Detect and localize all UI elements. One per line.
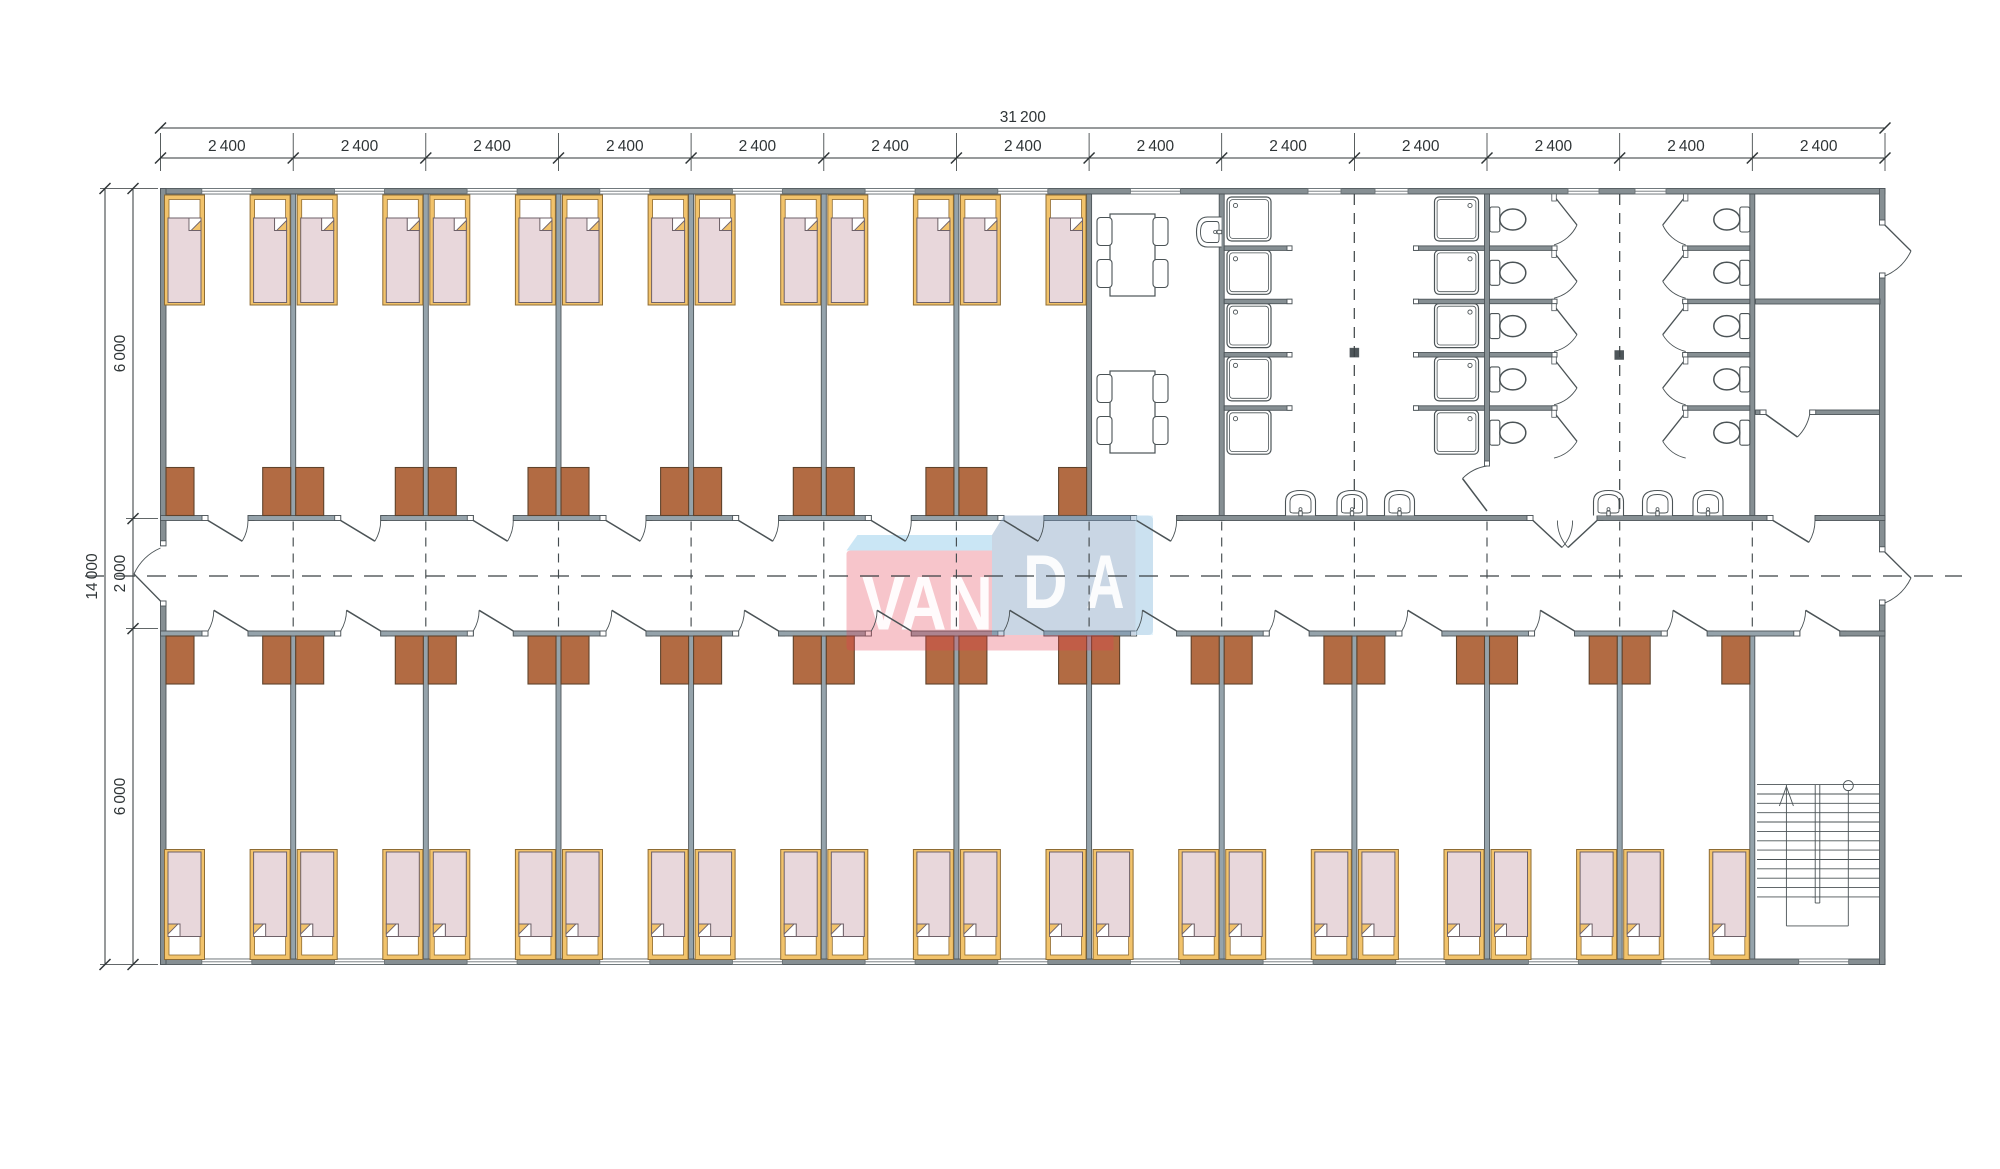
svg-text:2 400: 2 400 [1269,138,1307,155]
svg-text:D: D [1023,540,1068,625]
svg-text:2 400: 2 400 [1667,138,1705,155]
svg-text:31 200: 31 200 [1000,109,1047,126]
svg-text:2 400: 2 400 [1004,138,1042,155]
svg-text:2 400: 2 400 [871,138,909,155]
svg-text:2 400: 2 400 [1137,138,1175,155]
svg-text:2 400: 2 400 [1402,138,1440,155]
svg-text:2 400: 2 400 [739,138,777,155]
svg-text:VAN: VAN [862,562,993,647]
svg-text:2 400: 2 400 [606,138,644,155]
svg-text:6 000: 6 000 [112,777,129,815]
svg-text:2 400: 2 400 [1535,138,1573,155]
svg-text:6 000: 6 000 [112,334,129,372]
svg-text:2 400: 2 400 [1800,138,1838,155]
svg-text:2 400: 2 400 [341,138,379,155]
svg-text:2 400: 2 400 [208,138,246,155]
svg-text:A: A [1086,540,1125,625]
svg-text:2 000: 2 000 [112,554,129,592]
svg-text:2 400: 2 400 [473,138,511,155]
